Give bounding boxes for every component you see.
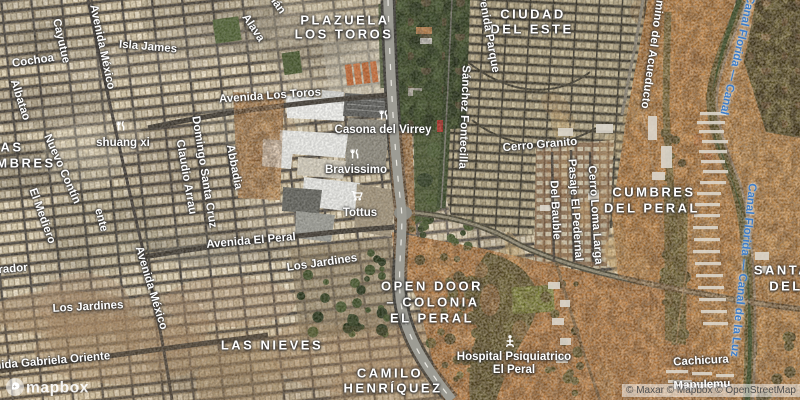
svg-text:mapbox: mapbox: [26, 380, 89, 397]
